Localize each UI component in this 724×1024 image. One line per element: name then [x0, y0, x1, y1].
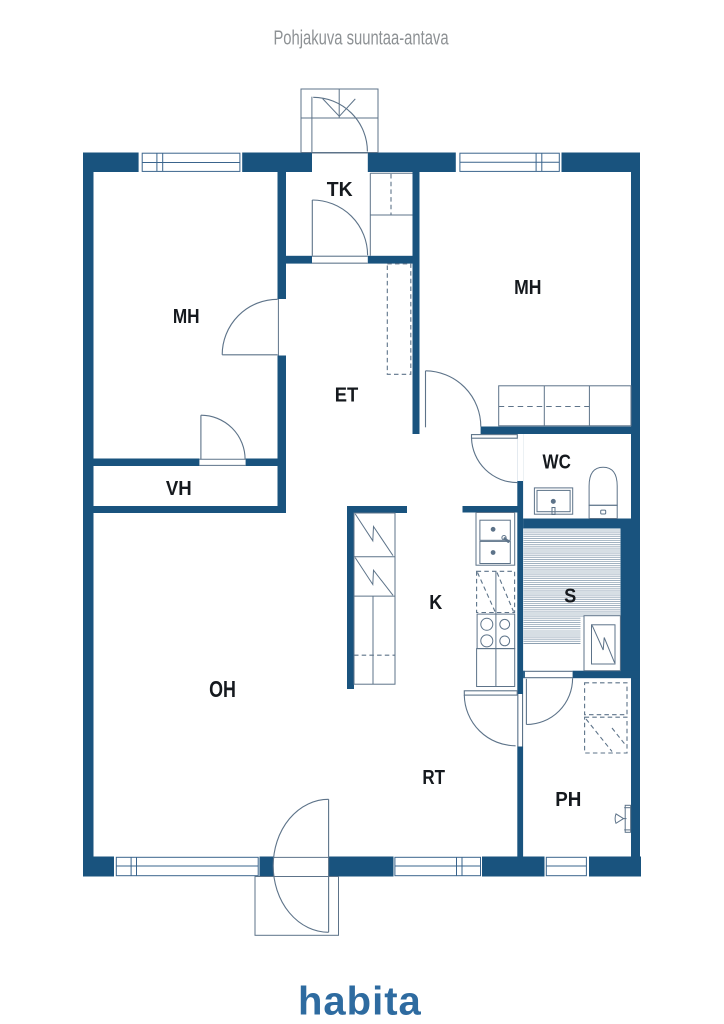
- svg-text:S: S: [564, 586, 576, 608]
- svg-text:TK: TK: [327, 179, 354, 201]
- svg-text:OH: OH: [209, 677, 236, 703]
- svg-text:RT: RT: [422, 766, 445, 789]
- svg-text:K: K: [429, 592, 442, 614]
- svg-text:habita: habita: [298, 980, 422, 1024]
- svg-text:MH: MH: [173, 305, 200, 328]
- svg-text:PH: PH: [555, 788, 581, 811]
- svg-text:MH: MH: [514, 276, 541, 298]
- svg-text:Pohjakuva suuntaa-antava: Pohjakuva suuntaa-antava: [273, 27, 448, 50]
- svg-text:ET: ET: [335, 385, 359, 407]
- svg-text:WC: WC: [543, 450, 571, 473]
- svg-text:VH: VH: [166, 478, 192, 500]
